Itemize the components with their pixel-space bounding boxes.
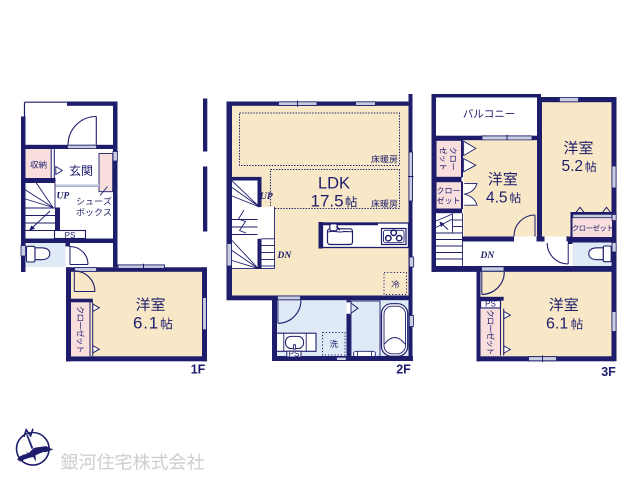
svg-text:17.5: 17.5 [311,192,344,211]
svg-text:5.2: 5.2 [562,158,584,175]
svg-text:PS: PS [65,231,76,240]
svg-text:LDK: LDK [318,175,350,193]
svg-text:UP: UP [260,192,273,202]
svg-text:DN: DN [277,251,293,261]
svg-text:6.1: 6.1 [546,316,568,333]
svg-text:DN: DN [480,251,496,261]
svg-text:2F: 2F [396,362,411,376]
svg-text:PS: PS [289,350,300,359]
svg-text:6.1: 6.1 [133,314,159,333]
svg-text:UP: UP [57,191,70,201]
svg-text:3F: 3F [601,365,616,379]
svg-text:PS: PS [485,300,496,309]
svg-text:4.5: 4.5 [486,189,508,206]
svg-text:1F: 1F [191,362,206,376]
